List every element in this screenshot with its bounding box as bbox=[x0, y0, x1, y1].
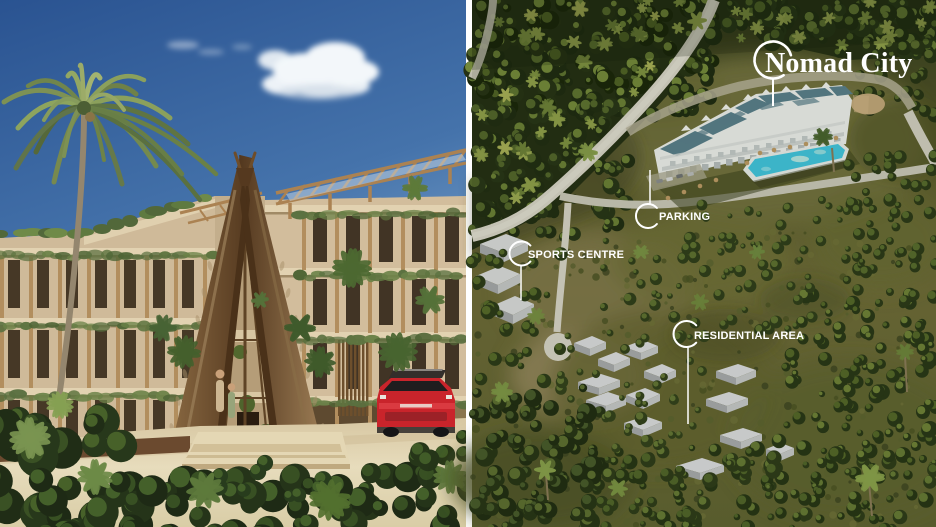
svg-text:SPORTS CENTRE: SPORTS CENTRE bbox=[528, 249, 624, 261]
svg-text:PARKING: PARKING bbox=[659, 211, 710, 223]
svg-text:Nomad City: Nomad City bbox=[765, 48, 912, 79]
svg-text:RESIDENTIAL AREA: RESIDENTIAL AREA bbox=[694, 330, 804, 342]
